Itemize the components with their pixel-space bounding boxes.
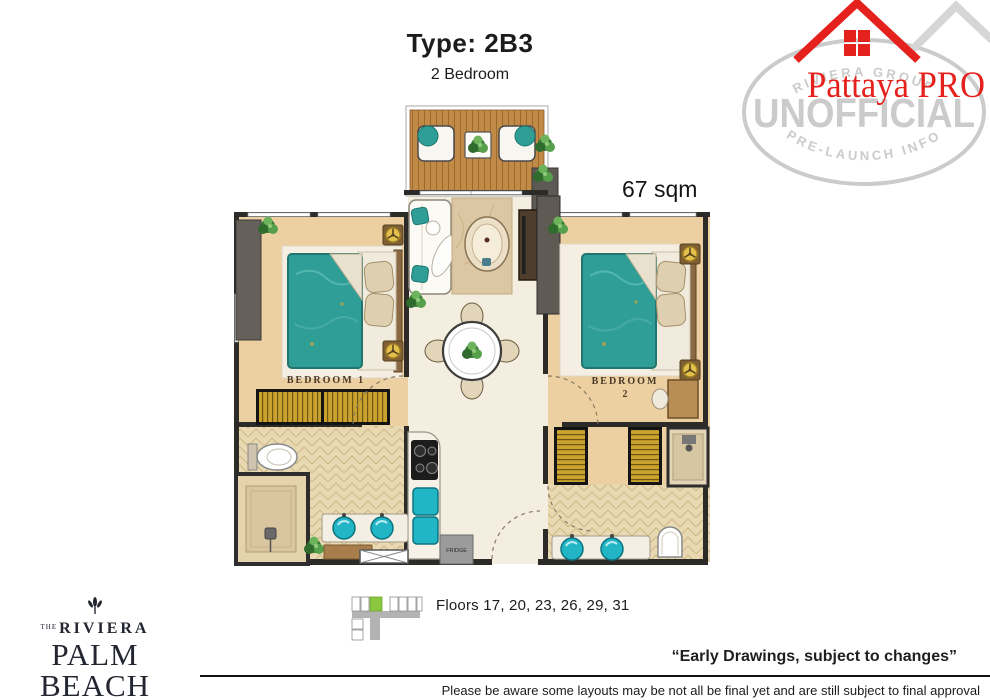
unit-subtitle: 2 Bedroom: [407, 66, 534, 84]
developer-name: RIVIERA: [59, 620, 149, 637]
tv-console: [519, 210, 537, 280]
sofa-pillow: [411, 207, 430, 226]
bedroom2-number: 2: [623, 389, 628, 400]
floorplan: BEDROOM 1: [232, 104, 712, 566]
keyplan-icon: [350, 593, 424, 641]
desk-chair: [652, 389, 668, 409]
tray: [482, 258, 491, 266]
keyplan-row: Floors 17, 20, 23, 26, 29, 31: [350, 593, 629, 641]
bedroom1-label: BEDROOM 1: [287, 375, 365, 386]
pillow: [364, 293, 395, 327]
toilet1: [248, 444, 297, 470]
ceiling-fan-icon: [680, 360, 700, 380]
flyer-page: Type: 2B3 2 Bedroom 67 sqm RIVIERA GROUP…: [0, 0, 990, 700]
shower-head-icon: [265, 528, 276, 539]
pillow: [656, 293, 687, 327]
wardrobe: [554, 427, 588, 485]
pattaya-pro-house-icon: [796, 3, 918, 60]
ceiling-fan-icon: [383, 225, 403, 245]
unit-type-title: Type: 2B3: [407, 28, 534, 59]
stove-cooktop: [411, 440, 438, 480]
sofa-pillow: [411, 265, 429, 283]
developer-name-row: THERIVIERA: [0, 621, 190, 637]
bedroom1: BEDROOM 1: [236, 217, 403, 427]
developer-the: THE: [41, 623, 58, 631]
wardrobe: [628, 427, 662, 485]
footer-divider: [200, 675, 990, 677]
brand-watermark: RIVIERA GROUP UNOFFICIAL PRE-LAUNCH INFO…: [720, 0, 990, 200]
ceiling-fan-icon: [680, 244, 700, 264]
toilet2: [658, 527, 682, 557]
shower1: [236, 474, 308, 564]
keyplan-highlighted-unit: [370, 597, 382, 611]
bedroom2-label: BEDROOM: [592, 376, 659, 387]
ceiling-fan-icon: [383, 341, 403, 361]
utility-door-panel: [360, 550, 408, 563]
early-drawings-quote: “Early Drawings, subject to changes”: [672, 648, 957, 666]
tv-icon: [522, 216, 526, 274]
shower2: [668, 428, 708, 486]
balcony-table: [465, 132, 491, 158]
balcony-chair: [499, 126, 535, 161]
pillow: [364, 261, 395, 294]
unofficial-stamp-icon: RIVIERA GROUP UNOFFICIAL PRE-LAUNCH INFO: [744, 40, 984, 184]
bedroom1-closet: [236, 220, 261, 340]
coffee-table: [465, 217, 509, 271]
fridge: FRIDGE: [440, 535, 473, 564]
kitchen-sink: [413, 517, 438, 544]
bedroom1-bed: [288, 254, 362, 368]
bedroom1-wardrobe: [256, 389, 390, 425]
balcony: [406, 106, 558, 212]
vanity2: [552, 534, 650, 560]
kitchen-sink: [413, 488, 438, 515]
bedroom2-bed: [582, 254, 656, 368]
project-name: PALM BEACH: [0, 639, 190, 700]
logo-ornament-icon: [87, 596, 103, 616]
balcony-chair: [418, 126, 454, 161]
fridge-label: FRIDGE: [446, 548, 467, 554]
floors-text: Floors 17, 20, 23, 26, 29, 31: [436, 597, 629, 614]
pillow: [656, 261, 687, 294]
developer-logo: THERIVIERA PALM BEACH WONGAMAT: [0, 596, 190, 700]
shower-head-icon: [682, 435, 696, 444]
living-closet-wall: [537, 196, 560, 314]
gray-house-outline-icon: [908, 6, 990, 54]
person-figure: [426, 221, 440, 235]
disclaimer-text: Please be aware some layouts may be not …: [442, 683, 980, 698]
unit-title-block: Type: 2B3 2 Bedroom: [407, 28, 534, 84]
brand-name-text: Pattaya PRO: [807, 65, 985, 106]
